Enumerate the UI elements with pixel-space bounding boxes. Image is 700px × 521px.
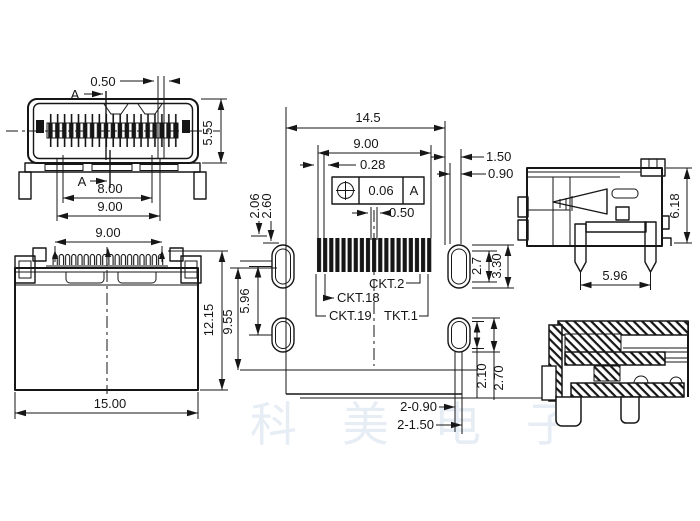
footprint-pads: [316, 238, 432, 272]
section-inner-block: [565, 334, 621, 353]
dim-label: 15.00: [94, 396, 127, 411]
dim-label: 8.00: [97, 181, 122, 196]
dim-label: 6.18: [667, 193, 682, 218]
dim-label: 5.55: [200, 120, 215, 145]
dim-label: 9.00: [353, 136, 378, 151]
pin19-callout: CKT.19: [329, 308, 372, 323]
pin2-callout: CKT.2: [369, 276, 404, 291]
dim-label: 3.30: [489, 253, 504, 278]
section-left-block: [542, 366, 556, 400]
dim-label: 0.28: [360, 157, 385, 172]
dim-label: 5.96: [602, 268, 627, 283]
dim-label: 1.50: [486, 149, 511, 164]
dim-label: 12.15: [201, 304, 216, 337]
section-pin-right: [621, 397, 639, 423]
pin18-callout: CKT.18: [337, 290, 380, 305]
section-label: A: [78, 174, 87, 189]
section-mid-wall: [565, 352, 665, 365]
dim-label: 9.00: [95, 225, 120, 240]
dim-label: 2.10: [474, 363, 489, 388]
dim-label: 2-0.90: [400, 399, 437, 414]
dim-label: 2.7: [469, 257, 484, 275]
section-pin-left: [556, 397, 581, 426]
dim-label: 0.50: [389, 205, 414, 220]
dim-label: 0.50: [90, 74, 115, 89]
tolerance-value: 0.06: [368, 183, 393, 198]
drawing-page: 科美电子 0.50 A A: [0, 0, 700, 521]
dim-label: 14.5: [355, 110, 380, 125]
dim-label: 9.00: [97, 199, 122, 214]
datum-label: A: [410, 183, 419, 198]
dim-label: 2-1.50: [397, 417, 434, 432]
dim-label: 2.60: [259, 193, 274, 218]
technical-drawing: 科美电子 0.50 A A: [0, 0, 700, 521]
section-small-block: [594, 366, 620, 381]
dim-label: 2.70: [491, 365, 506, 390]
pin1-callout: TKT.1: [384, 308, 418, 323]
dim-label: 9.55: [220, 309, 235, 334]
section-label: A: [71, 87, 80, 102]
section-bottom-wall: [571, 383, 684, 397]
section-top-wall: [558, 321, 688, 335]
dim-label: 0.90: [488, 166, 513, 181]
dim-label: 5.96: [237, 288, 252, 313]
